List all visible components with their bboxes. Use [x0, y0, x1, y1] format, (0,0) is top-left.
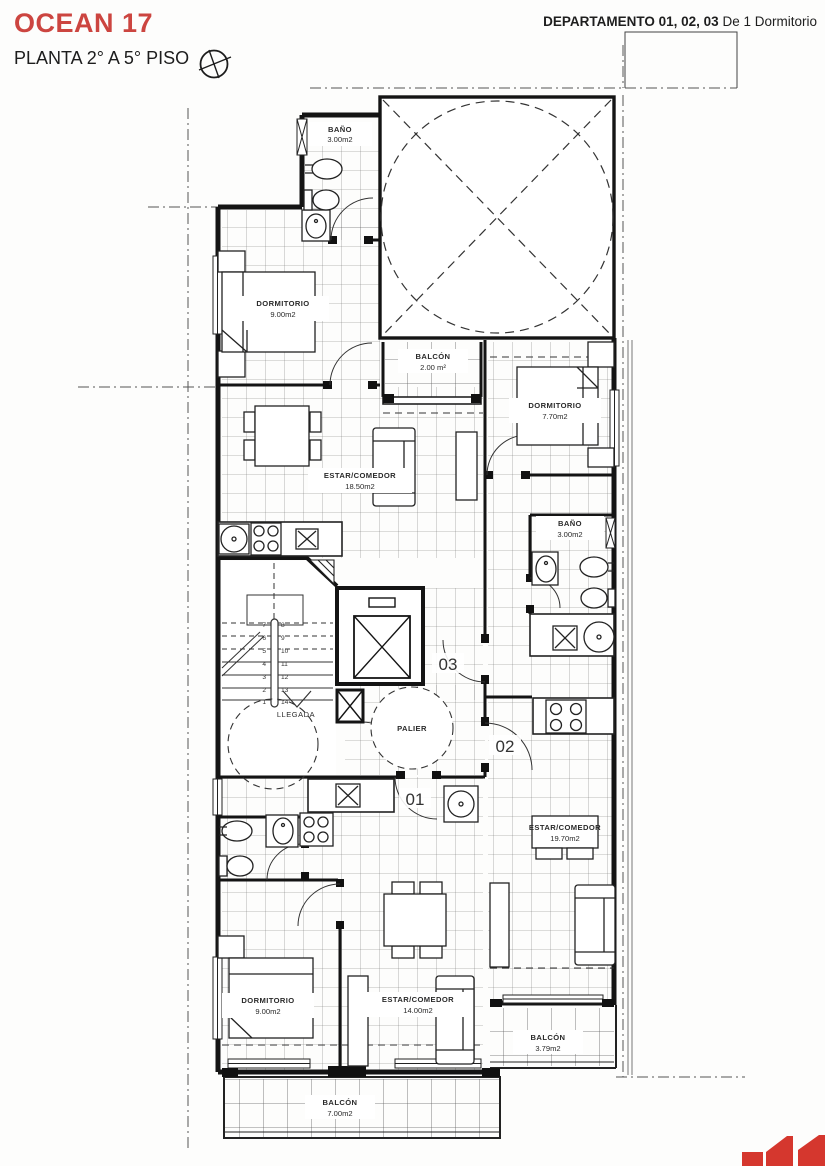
room-label-estar-01: ESTAR/COMEDOR 14.00m2	[366, 992, 470, 1017]
svg-text:ESTAR/COMEDOR: ESTAR/COMEDOR	[529, 823, 601, 832]
stair-number: 6	[262, 635, 266, 642]
floor-plan-drawing: 7 8 6 9 5 10 4 11 3 12 2 13 1 14 LLEGADA…	[0, 0, 825, 1166]
stair-number: 4	[262, 661, 266, 668]
svg-text:BALCÓN: BALCÓN	[416, 352, 451, 361]
svg-text:BAÑO: BAÑO	[328, 125, 352, 134]
stair-number: 2	[262, 687, 266, 694]
room-label-bano-02: BAÑO 3.00m2	[536, 516, 604, 540]
palier-label: PALIER	[397, 724, 427, 733]
apartments-label-bold: DEPARTAMENTO 01, 02, 03	[543, 14, 719, 29]
palier: PALIER	[371, 687, 453, 769]
svg-text:BALCÓN: BALCÓN	[531, 1033, 566, 1042]
stair-number: 13	[281, 687, 289, 694]
svg-text:18.50m2: 18.50m2	[345, 482, 375, 491]
floor-plan-page: OCEAN 17 PLANTA 2° A 5° PISO DEPARTAMENT…	[0, 0, 825, 1166]
svg-text:DORMITORIO: DORMITORIO	[241, 996, 294, 1005]
page-title: OCEAN 17	[14, 8, 153, 39]
svg-text:DORMITORIO: DORMITORIO	[256, 299, 309, 308]
floor-label: PLANTA 2° A 5° PISO	[14, 48, 189, 69]
roof-step-outline	[625, 32, 737, 88]
elevator	[337, 588, 423, 684]
stair-number: 7	[262, 622, 266, 629]
svg-text:7.70m2: 7.70m2	[542, 412, 567, 421]
svg-text:ESTAR/COMEDOR: ESTAR/COMEDOR	[324, 471, 396, 480]
svg-text:3.00m2: 3.00m2	[327, 135, 352, 144]
stair-number: 5	[262, 648, 266, 655]
svg-text:9.00m2: 9.00m2	[255, 1007, 280, 1016]
svg-text:19.70m2: 19.70m2	[550, 834, 580, 843]
party-wall-double-line	[628, 340, 632, 1075]
stair-number: 9	[281, 635, 285, 642]
svg-text:3.79m2: 3.79m2	[535, 1044, 560, 1053]
svg-text:7.00m2: 7.00m2	[327, 1109, 352, 1118]
svg-text:ESTAR/COMEDOR: ESTAR/COMEDOR	[382, 995, 454, 1004]
stair-number: 10	[281, 648, 289, 655]
stair-number: 12	[281, 674, 289, 681]
room-label-balcon-02: BALCÓN 3.79m2	[513, 1030, 583, 1054]
service-shaft	[337, 690, 363, 722]
svg-text:2.00 m²: 2.00 m²	[420, 363, 446, 372]
stair-number: 1	[262, 699, 266, 706]
apartments-label: DEPARTAMENTO 01, 02, 03 De 1 Dormitorio	[543, 14, 817, 29]
room-label-balcon-03: BALCÓN 2.00 m²	[398, 349, 468, 373]
air-shaft-void	[380, 97, 614, 338]
brand-logo	[742, 1135, 825, 1166]
stair-number: 14	[281, 699, 289, 706]
svg-text:9.00m2: 9.00m2	[270, 310, 295, 319]
unit-03-label: 03	[439, 655, 458, 674]
room-label-bano-03: BAÑO 3.00m2	[308, 122, 372, 146]
stair-number: 11	[281, 661, 288, 668]
room-label-dorm-01: DORMITORIO 9.00m2	[222, 993, 314, 1018]
unit-02-label: 02	[496, 737, 515, 756]
svg-text:3.00m2: 3.00m2	[557, 530, 582, 539]
unit-01-label: 01	[406, 790, 425, 809]
stair-number: 8	[281, 622, 285, 629]
room-label-balcon-01: BALCÓN 7.00m2	[305, 1095, 375, 1119]
room-label-estar-03: ESTAR/COMEDOR 18.50m2	[308, 468, 412, 493]
svg-text:DORMITORIO: DORMITORIO	[528, 401, 581, 410]
compass-icon	[199, 50, 231, 78]
apartments-label-regular: De 1 Dormitorio	[722, 14, 817, 29]
room-label-dorm-03: DORMITORIO 9.00m2	[237, 296, 329, 321]
room-label-dorm-02: DORMITORIO 7.70m2	[509, 398, 601, 423]
svg-text:14.00m2: 14.00m2	[403, 1006, 433, 1015]
stair-number: 3	[262, 674, 266, 681]
llegada-label: LLEGADA	[277, 710, 315, 719]
svg-text:BALCÓN: BALCÓN	[323, 1098, 358, 1107]
svg-text:BAÑO: BAÑO	[558, 519, 582, 528]
